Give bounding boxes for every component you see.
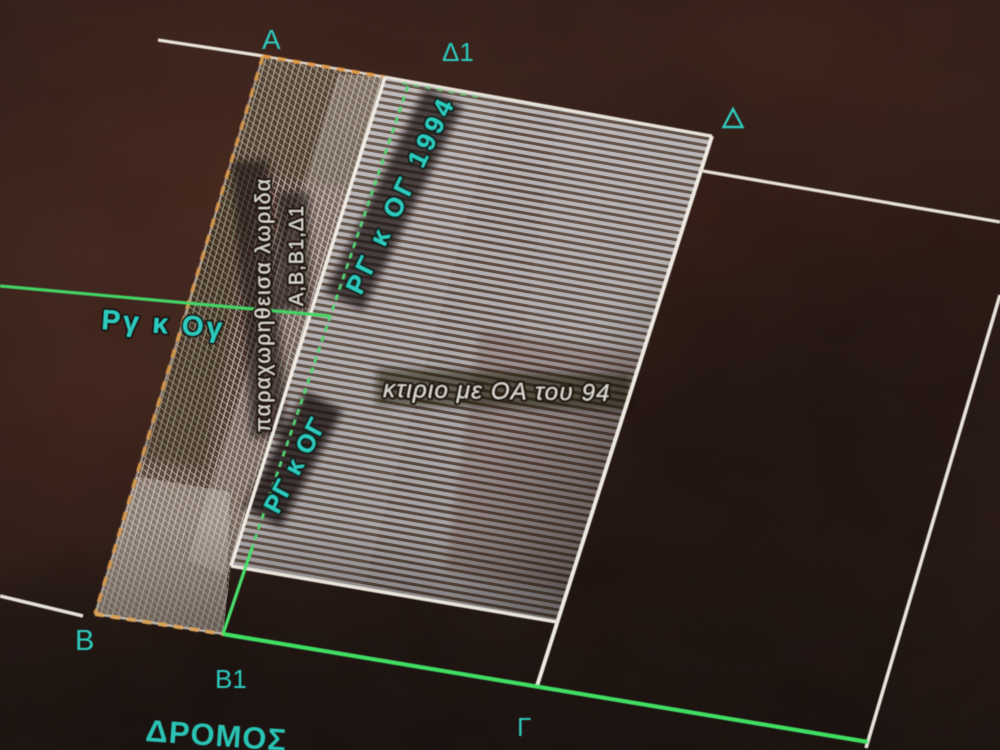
svg-text:B: B [75, 625, 94, 657]
svg-text:κτιριο με OA του 94: κτιριο με OA του 94 [383, 376, 611, 407]
svg-text:B1: B1 [215, 664, 247, 694]
svg-text:A,B,B1,Δ1: A,B,B1,Δ1 [286, 205, 308, 306]
svg-text:Δ1: Δ1 [442, 37, 474, 67]
svg-text:παραχωρηθεισα λωριδα: παραχωρηθεισα λωριδα [252, 177, 275, 432]
svg-text:A: A [262, 24, 281, 55]
svg-text:Γ: Γ [517, 712, 531, 742]
